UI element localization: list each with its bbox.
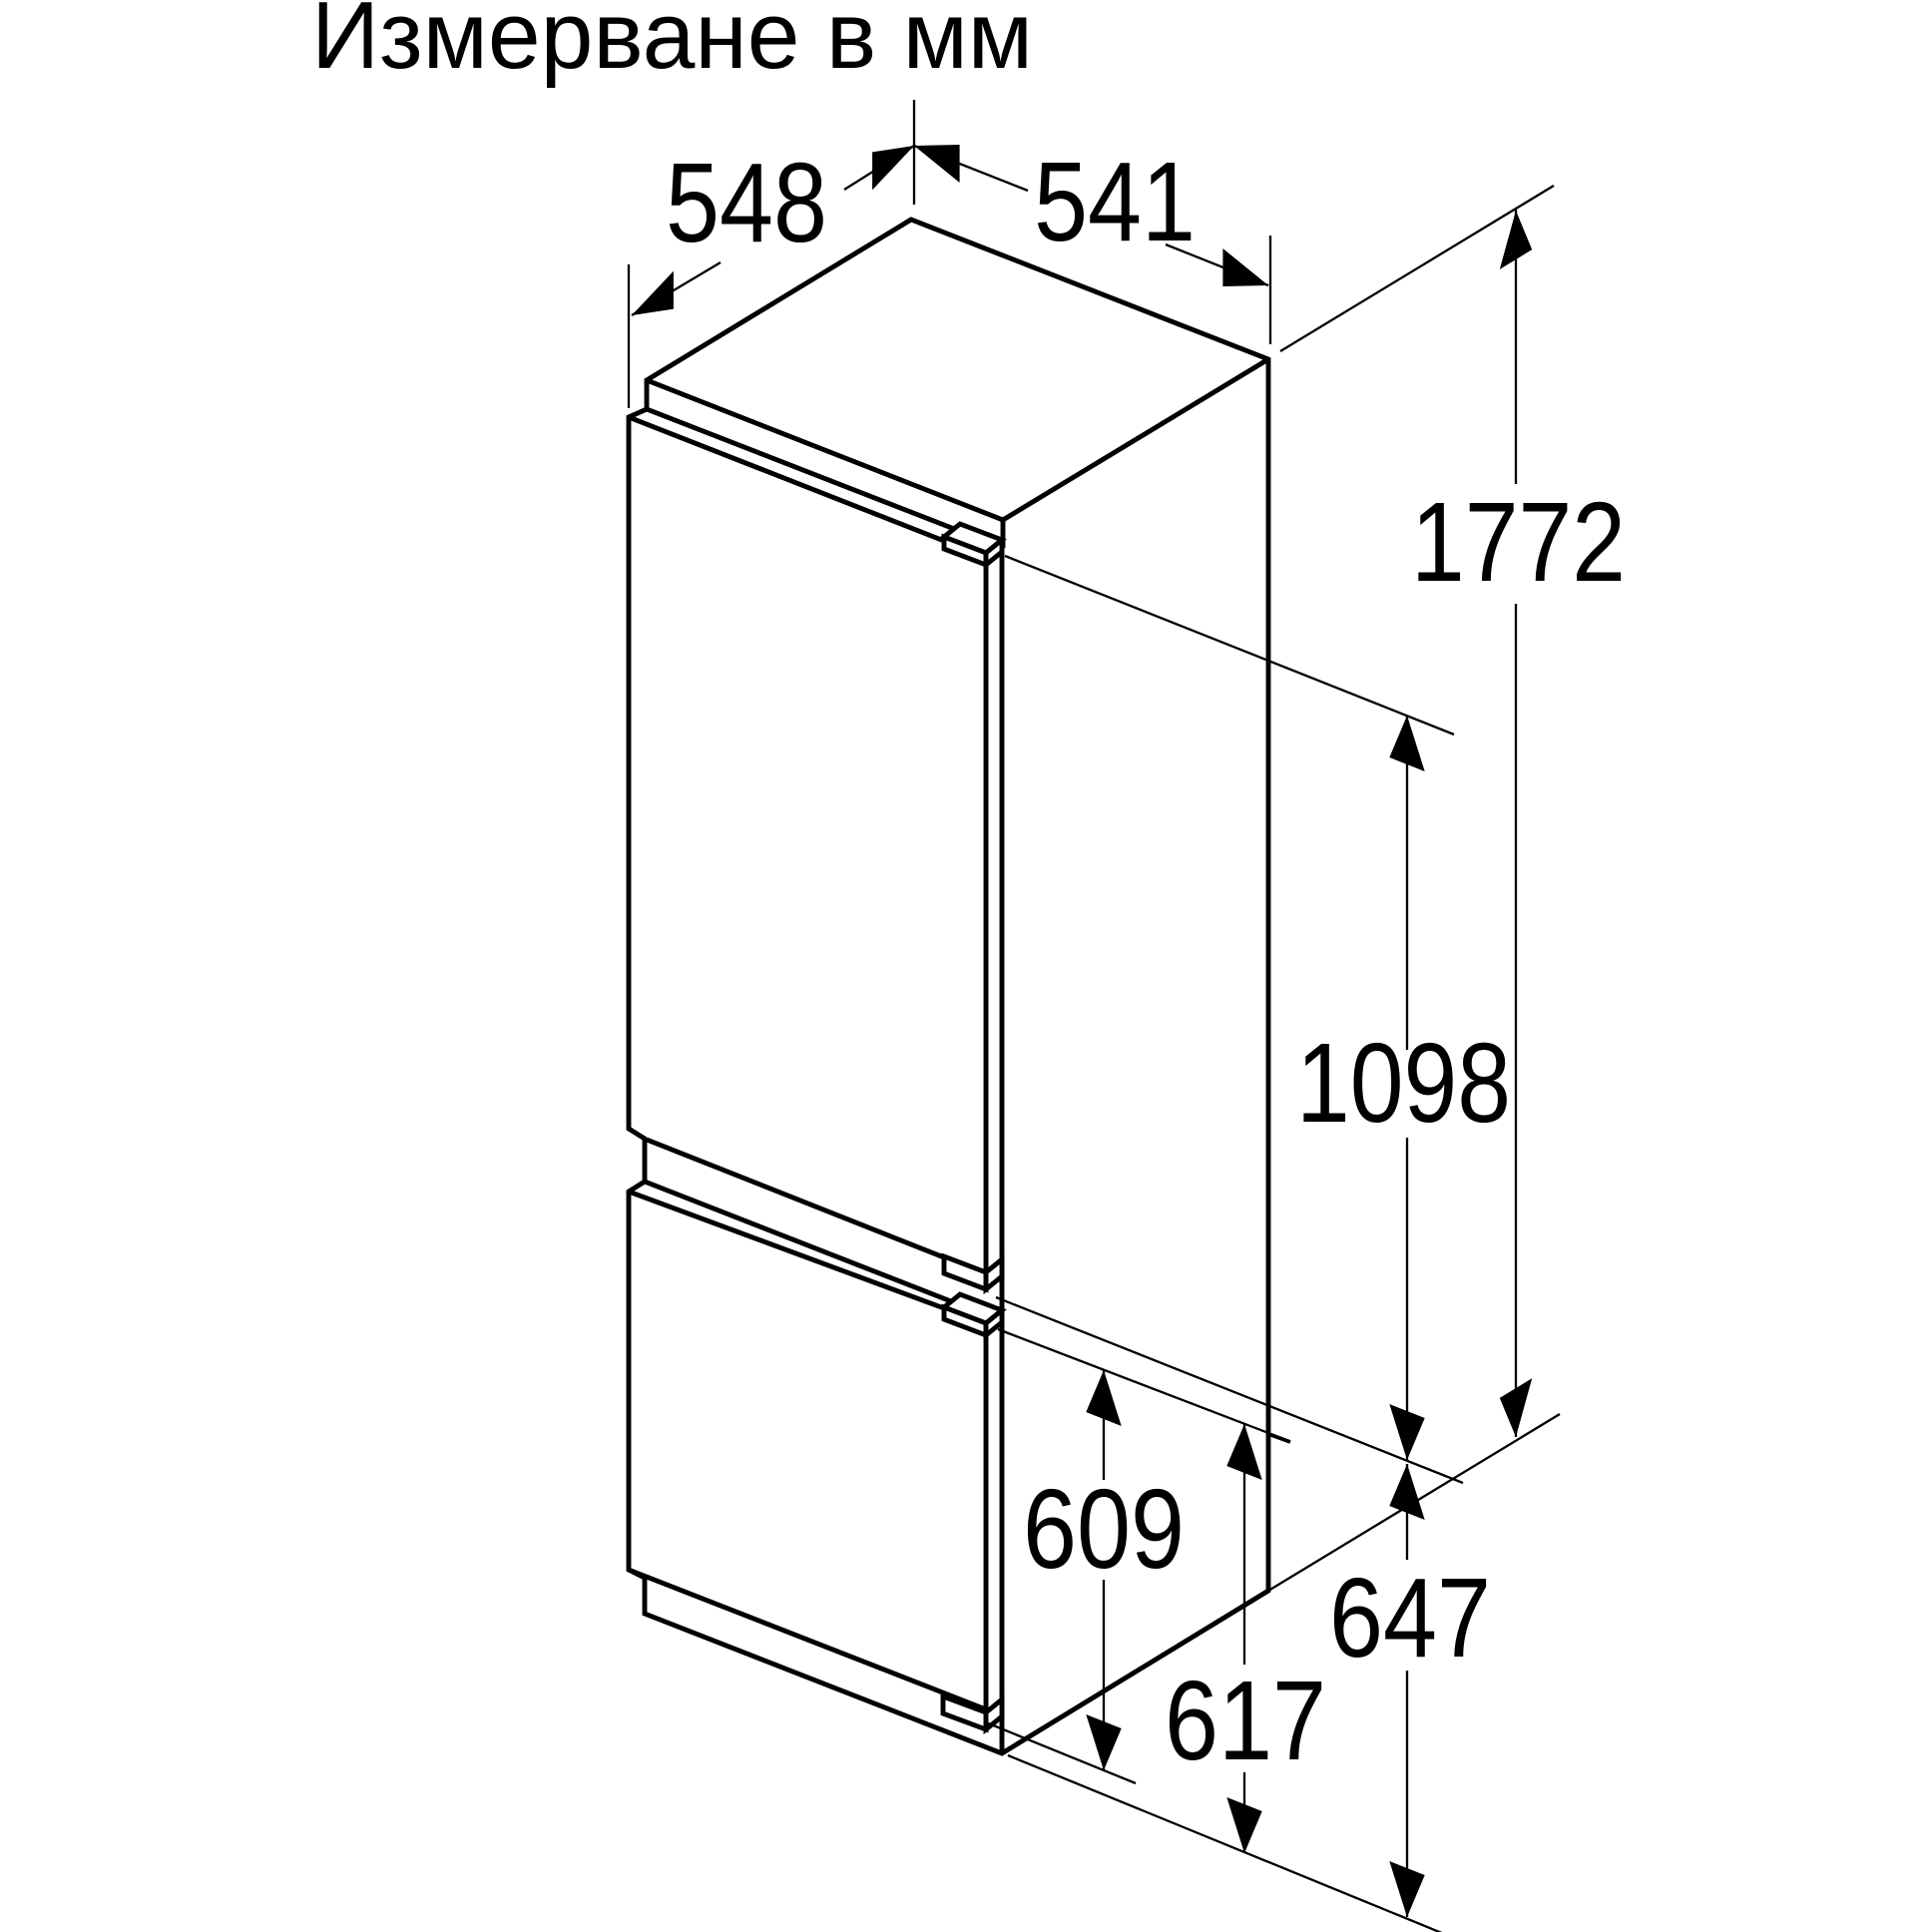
svg-text:609: 609	[1023, 1466, 1185, 1592]
svg-text:1098: 1098	[1296, 1020, 1511, 1146]
svg-text:541: 541	[1034, 139, 1196, 264]
svg-text:647: 647	[1329, 1555, 1491, 1681]
svg-text:617: 617	[1165, 1658, 1326, 1783]
svg-text:548: 548	[666, 140, 827, 265]
svg-text:Измерване в мм: Измерване в мм	[311, 0, 1033, 89]
svg-text:1772: 1772	[1411, 479, 1626, 605]
